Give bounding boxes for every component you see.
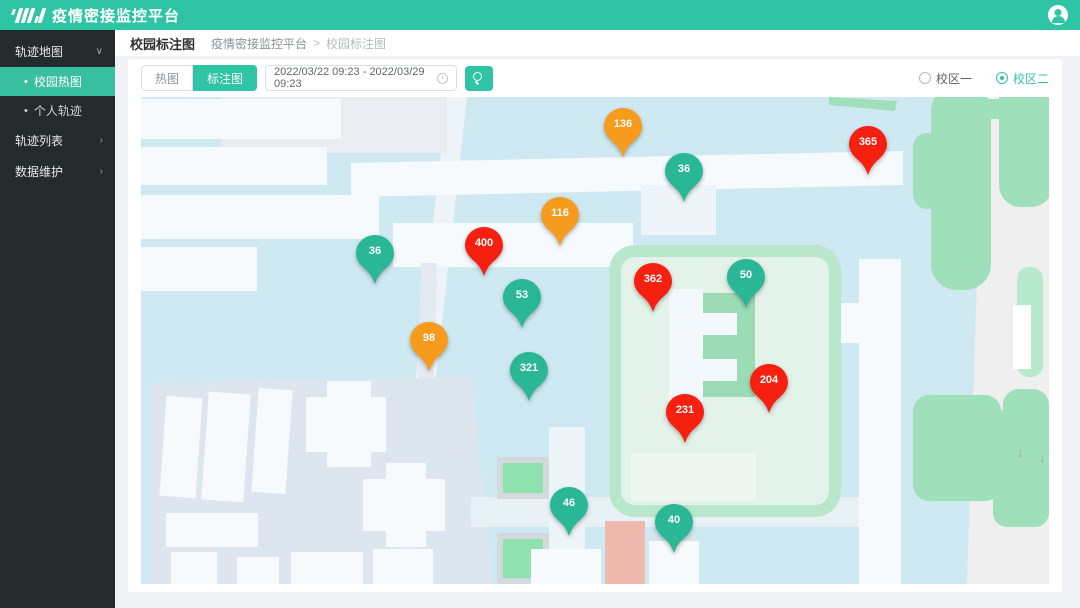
search-button[interactable] <box>465 66 493 91</box>
sidebar-item-label: 校园热图 <box>34 73 82 90</box>
sidebar-item-label: 数据维护 <box>15 163 63 180</box>
map-markers: 13636365116400363625053983212042314640 <box>141 97 1049 584</box>
toolbar: 热图 标注图 2022/03/22 09:23 - 2022/03/29 09:… <box>128 59 1062 97</box>
radio-campus-two[interactable]: 校区二 <box>996 70 1049 87</box>
map-marker[interactable]: 231 <box>666 394 704 444</box>
sidebar-item-data-maintenance[interactable]: 数据维护 › <box>0 156 115 187</box>
bullet-icon: • <box>24 105 28 117</box>
app-title: 疫情密接监控平台 <box>52 5 180 26</box>
map-marker[interactable]: 36 <box>665 153 703 203</box>
radio-label: 校区二 <box>1013 70 1049 87</box>
map-marker[interactable]: 204 <box>750 364 788 414</box>
map-mode-tabs: 热图 标注图 <box>141 65 257 91</box>
breadcrumb-root[interactable]: 疫情密接监控平台 <box>211 35 307 52</box>
tab-heatmap[interactable]: 热图 <box>141 65 193 91</box>
sidebar-item-label: 个人轨迹 <box>34 102 82 119</box>
user-icon <box>1055 9 1062 16</box>
radio-icon <box>919 72 931 84</box>
sidebar-item-personal-track[interactable]: • 个人轨迹 <box>0 96 115 125</box>
radio-label: 校区一 <box>936 70 972 87</box>
sidebar: 轨迹地图 ∨ • 校园热图 • 个人轨迹 轨迹列表 › 数据维护 › <box>0 30 115 608</box>
map-marker[interactable]: 46 <box>550 487 588 537</box>
map-marker[interactable]: 321 <box>510 352 548 402</box>
radio-campus-one[interactable]: 校区一 <box>919 70 972 87</box>
map-card: 热图 标注图 2022/03/22 09:23 - 2022/03/29 09:… <box>128 59 1062 592</box>
sidebar-item-label: 轨迹地图 <box>15 43 63 60</box>
chevron-right-icon: › <box>100 135 103 146</box>
map-marker[interactable]: 36 <box>356 235 394 285</box>
date-range-value: 2022/03/22 09:23 - 2022/03/29 09:23 <box>274 66 437 90</box>
bullet-icon: • <box>24 76 28 88</box>
radio-selected-icon <box>996 72 1008 84</box>
app-header: 疫情密接监控平台 <box>0 0 1080 30</box>
map-marker[interactable]: 98 <box>410 322 448 372</box>
map-marker[interactable]: 400 <box>465 227 503 277</box>
logo-icon <box>12 7 44 23</box>
scroll-down-icon[interactable]: ↓ <box>1017 445 1024 460</box>
map-marker[interactable]: 136 <box>604 108 642 158</box>
chevron-right-icon: › <box>100 166 103 177</box>
tab-marker-map[interactable]: 标注图 <box>193 65 257 91</box>
map-marker[interactable]: 365 <box>849 126 887 176</box>
user-avatar[interactable] <box>1048 5 1068 25</box>
main-content: 校园标注图 疫情密接监控平台 > 校园标注图 热图 标注图 2022/03/22… <box>115 30 1080 608</box>
breadcrumb-separator: > <box>313 36 320 50</box>
map-marker[interactable]: 50 <box>727 259 765 309</box>
breadcrumb: 校园标注图 疫情密接监控平台 > 校园标注图 <box>115 30 1080 56</box>
sidebar-item-track-list[interactable]: 轨迹列表 › <box>0 125 115 156</box>
scroll-down-icon[interactable]: ↓ <box>1039 450 1046 465</box>
map-marker[interactable]: 362 <box>634 263 672 313</box>
date-range-input[interactable]: 2022/03/22 09:23 - 2022/03/29 09:23 <box>265 65 457 91</box>
logo: 疫情密接监控平台 <box>12 5 180 26</box>
sidebar-item-campus-heatmap[interactable]: • 校园热图 <box>0 67 115 96</box>
sidebar-item-label: 轨迹列表 <box>15 132 63 149</box>
map-marker[interactable]: 116 <box>541 197 579 247</box>
page-title: 校园标注图 <box>130 34 195 53</box>
sidebar-item-track-map[interactable]: 轨迹地图 ∨ <box>0 36 115 67</box>
map-marker[interactable]: 53 <box>503 279 541 329</box>
breadcrumb-current: 校园标注图 <box>326 35 386 52</box>
chevron-down-icon: ∨ <box>96 46 103 57</box>
campus-map[interactable]: 13636365116400363625053983212042314640 ↓… <box>141 97 1049 584</box>
clock-icon <box>437 73 448 84</box>
search-icon <box>473 72 482 81</box>
map-marker[interactable]: 40 <box>655 504 693 554</box>
